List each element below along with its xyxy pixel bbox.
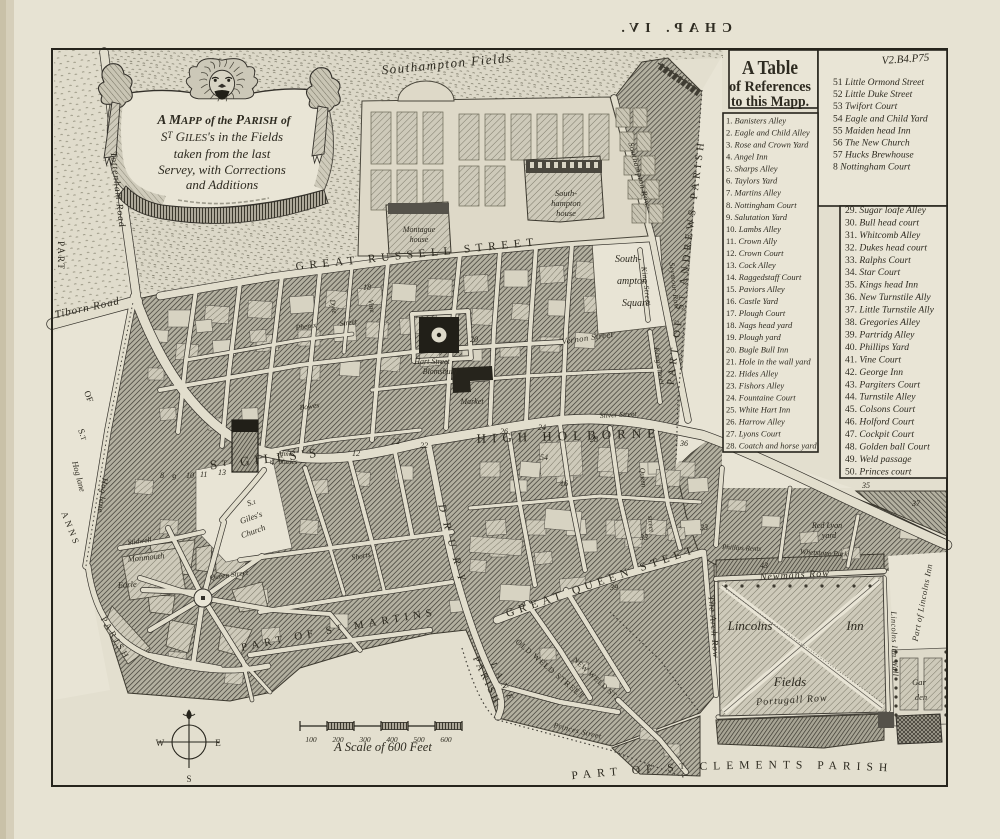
svg-text:15. Paviors Alley: 15. Paviors Alley xyxy=(726,284,785,294)
svg-text:14. Raggedstaff Court: 14. Raggedstaff Court xyxy=(726,272,802,282)
svg-text:38. Gregories Alley: 38. Gregories Alley xyxy=(845,317,921,328)
svg-text:1. Banisters Alley: 1. Banisters Alley xyxy=(726,116,786,126)
svg-text:Earle: Earle xyxy=(116,579,137,590)
svg-text:house: house xyxy=(410,235,429,244)
svg-text:to this Mapp.: to this Mapp. xyxy=(731,94,809,110)
svg-text:39. Partridg Alley: 39. Partridg Alley xyxy=(845,330,915,341)
svg-text:Red Lyon: Red Lyon xyxy=(811,521,842,530)
svg-text:33: 33 xyxy=(699,523,708,532)
svg-text:19. Plough yard: 19. Plough yard xyxy=(726,332,781,342)
svg-text:S: S xyxy=(186,774,191,784)
svg-text:47. Cockpit Court: 47. Cockpit Court xyxy=(845,429,914,440)
svg-text:22: 22 xyxy=(420,441,428,450)
svg-text:600: 600 xyxy=(440,735,452,744)
svg-text:9: 9 xyxy=(172,473,176,482)
svg-text:41. Vine Court: 41. Vine Court xyxy=(845,354,901,365)
svg-text:45. Colsons Court: 45. Colsons Court xyxy=(845,404,915,415)
svg-text:A Table: A Table xyxy=(742,57,798,79)
svg-text:31. Whitcomb Alley: 31. Whitcomb Alley xyxy=(845,230,921,241)
svg-text:34. Star Court: 34. Star Court xyxy=(845,267,901,278)
svg-text:CHAP. IV.: CHAP. IV. xyxy=(615,21,732,36)
svg-text:36: 36 xyxy=(679,439,688,448)
svg-text:Montague: Montague xyxy=(402,225,436,234)
svg-text:49. Weld passage: 49. Weld passage xyxy=(845,454,912,465)
svg-text:100: 100 xyxy=(305,735,317,744)
svg-text:18: 18 xyxy=(363,283,371,292)
svg-text:33. Ralphs Court: 33. Ralphs Court xyxy=(845,255,911,266)
svg-text:6. Taylors Yard: 6. Taylors Yard xyxy=(726,176,778,186)
svg-text:33: 33 xyxy=(639,533,648,542)
svg-text:and Additions: and Additions xyxy=(186,177,258,192)
svg-text:Market: Market xyxy=(459,397,484,406)
svg-text:26. Harrow Alley: 26. Harrow Alley xyxy=(726,417,785,427)
svg-text:W: W xyxy=(156,738,165,748)
svg-text:Lincolns: Lincolns xyxy=(727,618,773,633)
svg-text:51 Little Ormond Street: 51 Little Ormond Street xyxy=(833,77,924,88)
svg-text:8. Nottingham Court: 8. Nottingham Court xyxy=(726,200,797,210)
svg-text:den: den xyxy=(915,692,927,702)
svg-text:10. Lambs Alley: 10. Lambs Alley xyxy=(726,224,781,234)
svg-text:A Scale of 600 Feet: A Scale of 600 Feet xyxy=(333,740,432,754)
svg-text:ampton: ampton xyxy=(617,276,647,287)
svg-text:54: 54 xyxy=(540,453,548,462)
svg-text:43: 43 xyxy=(760,561,768,570)
svg-text:35: 35 xyxy=(861,481,870,490)
svg-text:13. Cock Alley: 13. Cock Alley xyxy=(726,260,776,270)
svg-text:Queen: Queen xyxy=(638,467,649,488)
svg-text:2. Eagle and Child Alley: 2. Eagle and Child Alley xyxy=(726,128,810,138)
svg-text:4: 4 xyxy=(270,458,274,467)
svg-text:of References: of References xyxy=(729,79,811,95)
svg-text:23. Fishors Alley: 23. Fishors Alley xyxy=(726,380,784,390)
svg-text:house: house xyxy=(556,208,576,218)
svg-text:PART: PART xyxy=(56,241,66,271)
svg-text:yard: yard xyxy=(821,531,837,540)
svg-text:taken from the last: taken from the last xyxy=(174,146,271,161)
svg-text:11: 11 xyxy=(200,470,207,479)
svg-text:52 Little Duke Street: 52 Little Duke Street xyxy=(833,89,913,100)
svg-text:9. Salutation Yard: 9. Salutation Yard xyxy=(726,212,788,222)
svg-text:57 Hucks Brewhouse: 57 Hucks Brewhouse xyxy=(833,150,914,161)
svg-text:Almes: Almes xyxy=(276,450,294,458)
svg-text:42. George Inn: 42. George Inn xyxy=(845,367,903,378)
svg-text:35. Kings head Inn: 35. Kings head Inn xyxy=(845,280,918,291)
svg-text:8: 8 xyxy=(160,471,164,480)
svg-text:8 Nottingham Court: 8 Nottingham Court xyxy=(833,162,911,173)
svg-text:29. Sugar loafe Alley: 29. Sugar loafe Alley xyxy=(845,205,927,216)
svg-text:18. Nags head yard: 18. Nags head yard xyxy=(726,320,793,330)
svg-text:Hart Street: Hart Street xyxy=(413,357,450,366)
svg-text:16. Castle Yard: 16. Castle Yard xyxy=(726,296,779,306)
svg-text:39: 39 xyxy=(609,583,618,592)
svg-text:South-: South- xyxy=(555,188,577,198)
svg-text:A MAPP of the PARISH of: A MAPP of the PARISH of xyxy=(156,112,291,127)
svg-text:37: 37 xyxy=(911,499,921,508)
svg-text:22. Hides Alley: 22. Hides Alley xyxy=(726,368,778,378)
svg-text:24: 24 xyxy=(538,423,546,432)
svg-text:46. Holford Court: 46. Holford Court xyxy=(845,417,915,428)
svg-text:Inn: Inn xyxy=(845,618,863,633)
svg-text:32. Dukes head court: 32. Dukes head court xyxy=(845,242,927,253)
svg-text:30. Bull head court: 30. Bull head court xyxy=(845,217,919,228)
svg-text:21. Hole in the wall yard: 21. Hole in the wall yard xyxy=(726,356,811,366)
svg-text:20: 20 xyxy=(470,335,478,344)
svg-text:houses: houses xyxy=(278,458,297,466)
svg-text:20. Bugle Bull Inn: 20. Bugle Bull Inn xyxy=(726,344,788,354)
svg-text:55 Maiden head Inn: 55 Maiden head Inn xyxy=(833,125,911,136)
svg-text:48. Golden ball Court: 48. Golden ball Court xyxy=(845,442,930,453)
svg-text:53 Twifort Court: 53 Twifort Court xyxy=(833,101,898,112)
svg-text:street: street xyxy=(646,515,656,533)
svg-text:7. Martins Alley: 7. Martins Alley xyxy=(726,188,781,198)
svg-text:Servey, with Corrections: Servey, with Corrections xyxy=(158,162,286,177)
svg-text:Square: Square xyxy=(622,298,651,309)
svg-text:12. Crown Court: 12. Crown Court xyxy=(726,248,784,258)
svg-text:28: 28 xyxy=(590,435,598,444)
svg-text:13: 13 xyxy=(218,468,226,477)
svg-text:36. New Turnstile Ally: 36. New Turnstile Ally xyxy=(845,292,931,303)
svg-text:24. Fountaine Court: 24. Fountaine Court xyxy=(726,392,796,402)
svg-text:3. Rose and Crown Yard: 3. Rose and Crown Yard xyxy=(726,140,809,150)
svg-text:17. Plough Court: 17. Plough Court xyxy=(726,308,786,318)
svg-text:27. Lyons Court: 27. Lyons Court xyxy=(726,429,781,439)
svg-text:Gar: Gar xyxy=(912,677,926,687)
svg-text:11. Crown Ally: 11. Crown Ally xyxy=(726,236,777,246)
svg-text:12: 12 xyxy=(352,449,360,458)
svg-text:43. Pargiters Court: 43. Pargiters Court xyxy=(845,379,920,390)
svg-text:Fields: Fields xyxy=(773,674,807,689)
svg-text:28. Coatch and horse yard: 28. Coatch and horse yard xyxy=(726,441,817,451)
svg-text:Blomsbury: Blomsbury xyxy=(423,367,458,376)
svg-text:South-: South- xyxy=(615,254,641,265)
svg-text:56 The New Church: 56 The New Church xyxy=(833,138,910,149)
svg-text:ST GILES's in the Fields: ST GILES's in the Fields xyxy=(161,129,283,144)
svg-text:5. Sharps Alley: 5. Sharps Alley xyxy=(726,164,778,174)
svg-text:10: 10 xyxy=(186,471,194,480)
svg-text:26: 26 xyxy=(500,427,508,436)
svg-text:E: E xyxy=(215,738,221,748)
svg-text:4. Angel Inn: 4. Angel Inn xyxy=(726,152,768,162)
svg-text:25. White Hart Inn: 25. White Hart Inn xyxy=(726,405,790,415)
svg-text:40. Phillips Yard: 40. Phillips Yard xyxy=(845,342,909,353)
svg-text:hampton: hampton xyxy=(551,198,581,208)
svg-text:44. Turnstile Alley: 44. Turnstile Alley xyxy=(845,392,916,403)
svg-text:50. Princes court: 50. Princes court xyxy=(845,466,912,477)
svg-text:22: 22 xyxy=(392,437,400,446)
svg-text:37. Little Turnstile Ally: 37. Little Turnstile Ally xyxy=(845,305,935,316)
svg-text:54 Eagle and Child Yard: 54 Eagle and Child Yard xyxy=(833,113,928,124)
svg-text:16: 16 xyxy=(560,479,568,488)
